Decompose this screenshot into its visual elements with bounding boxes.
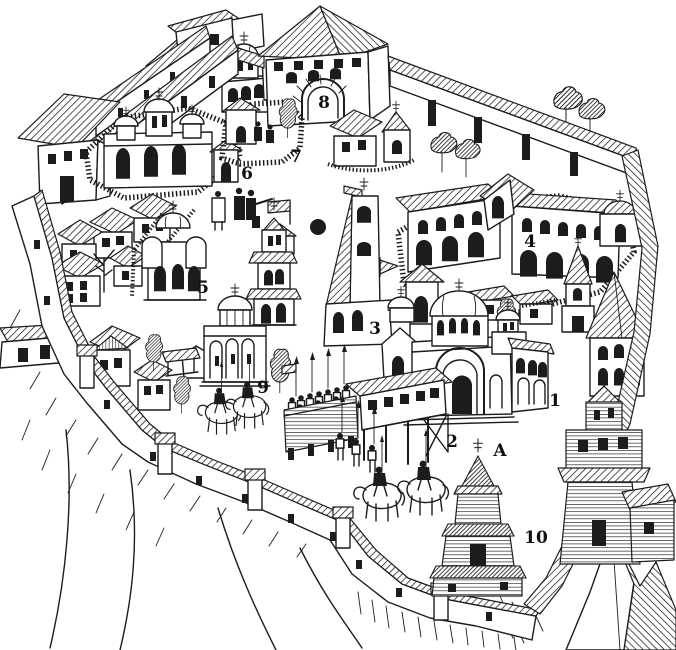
map-label-7: 7 [290,147,302,167]
map-label-1: 1 [549,391,561,411]
map-label-3: 3 [369,319,381,339]
engraving-map: 1 2 3 4 5 6 7 8 9 10 A [0,0,676,650]
map-label-5: 5 [197,278,209,298]
map-label-4: 4 [524,232,536,252]
map-label-8: 8 [318,93,330,113]
map-label-A: A [492,441,507,461]
map-label-2: 2 [446,432,458,452]
map-canvas: 1 2 3 4 5 6 7 8 9 10 A [0,0,676,650]
map-label-9: 9 [257,378,269,398]
flag-icon [282,364,296,374]
map-label-6: 6 [241,164,253,184]
map-label-10: 10 [524,528,548,548]
dot-marker [310,219,326,235]
